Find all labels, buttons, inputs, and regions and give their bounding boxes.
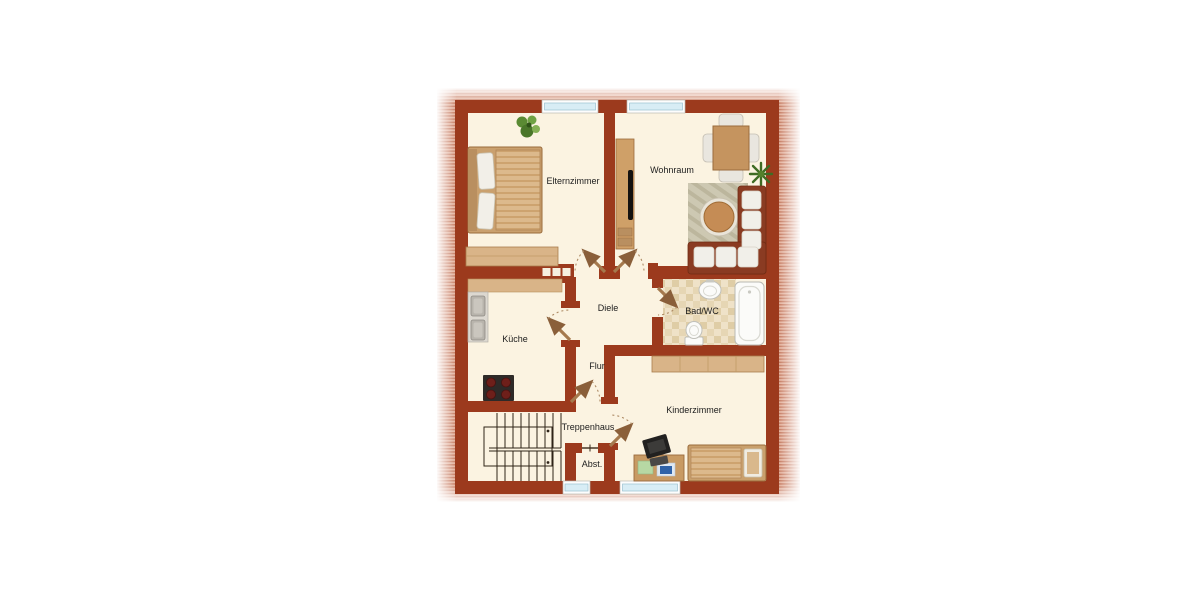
stove-icon: [483, 375, 514, 401]
wall-bad-south: [604, 345, 766, 356]
label-kinderzimmer: Kinderzimmer: [666, 405, 722, 415]
double-bed-icon: [468, 147, 542, 233]
label-kueche: Küche: [502, 334, 528, 344]
wall-kueche-south: [468, 401, 576, 412]
wall-bad-west-top: [652, 279, 663, 288]
wall-bad-west: [652, 317, 663, 345]
potted-plant-icon: [750, 163, 772, 185]
wall-kinder-west-top: [604, 356, 615, 404]
wardrobe-icon: [466, 247, 558, 266]
coffee-table-icon: [700, 198, 738, 236]
wall-eltern-south: [468, 266, 540, 279]
outer-wall-bottom: [455, 481, 779, 494]
outer-wall-left: [455, 100, 468, 494]
floorplan-canvas: Elternzimmer Wohnraum Diele Küche Bad/WC…: [0, 0, 1200, 600]
toilet-icon: [685, 322, 703, 346]
single-bed-icon: [688, 445, 766, 481]
window-icon: [563, 481, 590, 494]
wardrobe-icon: [652, 356, 764, 372]
window-icon: [620, 481, 680, 494]
label-abstellraum: Abst.: [582, 459, 603, 469]
glass-blocks: [543, 268, 571, 276]
shelf-tv-icon: [616, 139, 634, 249]
window-icon: [542, 100, 598, 113]
label-diele: Diele: [598, 303, 619, 313]
window-icon: [627, 100, 685, 113]
label-bad-wc: Bad/WC: [685, 306, 719, 316]
outer-wall-right: [766, 100, 779, 494]
bathtub-icon: [735, 282, 764, 345]
wall-kueche-east-mid: [565, 340, 576, 402]
wall-abst-north-left: [565, 443, 582, 453]
label-treppenhaus: Treppenhaus: [562, 422, 615, 432]
wall-eltern-wohn: [604, 113, 615, 266]
double-sink-icon: [468, 292, 488, 342]
label-flur: Flur: [589, 361, 605, 371]
floorplan-svg: Elternzimmer Wohnraum Diele Küche Bad/WC…: [0, 0, 1200, 600]
label-elternzimmer: Elternzimmer: [546, 176, 599, 186]
kitchen-counter-icon: [468, 279, 562, 292]
outer-wall-top: [455, 100, 779, 113]
label-wohnraum: Wohnraum: [650, 165, 694, 175]
